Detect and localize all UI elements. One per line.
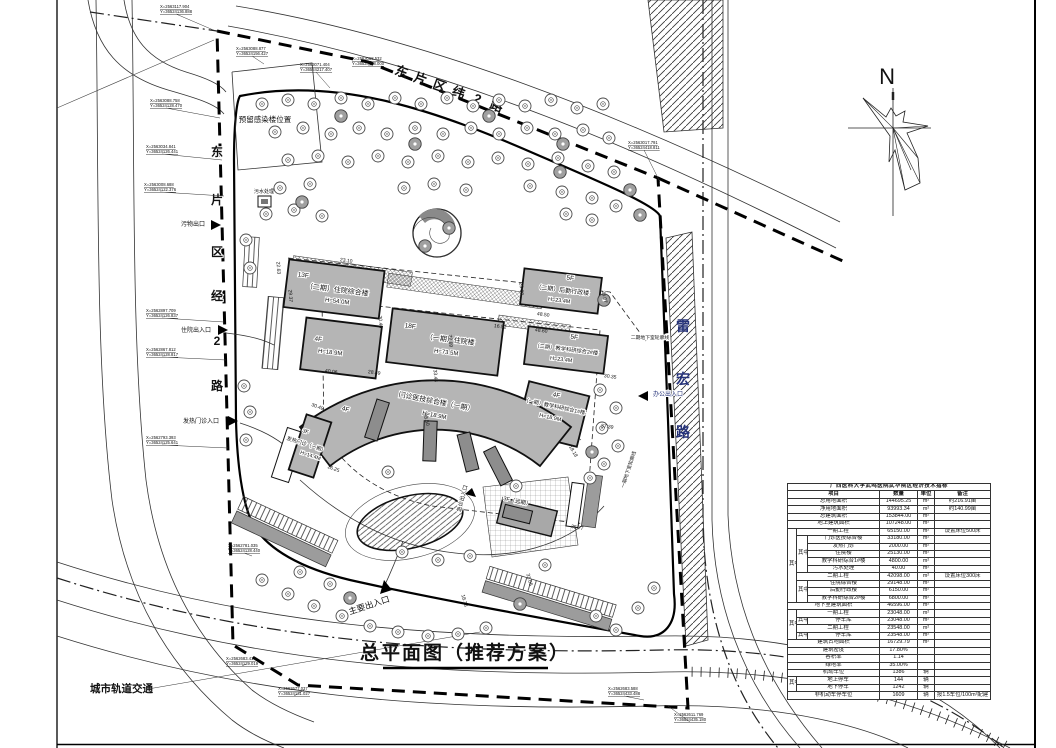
coordinate-label: X=2562781.035Y=36524128.440 — [228, 543, 261, 556]
sewage-note: 污水处理 — [254, 188, 274, 195]
tree-icon — [282, 588, 294, 600]
coordinate-label: X=2562793.393Y=36524125.641 — [146, 435, 228, 448]
cell — [935, 521, 991, 528]
cell: 地上停车 — [797, 677, 880, 684]
cell: 33180.00 — [880, 536, 918, 543]
col-header: 数量 — [880, 491, 918, 498]
cell: m² — [918, 528, 935, 535]
tree-icon — [610, 200, 622, 212]
tree-icon — [422, 630, 434, 642]
svg-text:Y=36524129.019: Y=36524129.019 — [226, 661, 259, 666]
svg-text:Y=36524126.837: Y=36524126.837 — [146, 313, 179, 318]
tree-icon — [603, 132, 615, 144]
tree-icon — [610, 624, 622, 636]
tree-icon — [586, 192, 598, 204]
cell: 1386 — [880, 669, 918, 676]
cell: 总建筑面积 — [788, 513, 880, 520]
cell: 一期工程 — [797, 528, 880, 535]
tree-icon — [598, 458, 610, 470]
office-entrance-arrow-icon — [638, 391, 648, 401]
cell — [935, 513, 991, 520]
dimension-label: 20.46 — [376, 315, 383, 328]
office-entrance-label: 办公出入口 — [653, 390, 683, 398]
table-row: 污水处理40.00m² — [788, 565, 991, 572]
cell-group: 其中 — [788, 677, 797, 692]
cell: 约216.91亩 — [935, 498, 991, 505]
tree-icon — [493, 94, 505, 106]
oval-plaza — [351, 484, 468, 561]
building-slab-east — [566, 474, 603, 527]
cell: 设置床位300床 — [935, 573, 991, 580]
tree-icon — [409, 122, 421, 134]
cell — [918, 662, 935, 669]
tree-icon — [294, 566, 306, 578]
cell: 建筑密度 — [788, 647, 880, 654]
cell-group: 其中 — [797, 536, 808, 573]
table-row: 后勤行政楼6150.00m² — [788, 588, 991, 595]
cell — [935, 588, 991, 595]
tree-solid-icon — [335, 110, 347, 122]
dimension-label: 22.63 — [274, 261, 281, 274]
cell: m² — [918, 558, 935, 565]
cell: m² — [918, 640, 935, 647]
cell: m² — [918, 595, 935, 602]
table-row: 绿地率35.00% — [788, 662, 991, 669]
north-wind-rose-icon: N — [848, 64, 931, 216]
road-char: 路 — [676, 424, 691, 440]
tree-solid-icon — [483, 110, 495, 122]
cell: 门诊医技综合楼 — [808, 536, 880, 543]
cell — [918, 647, 935, 654]
cell — [935, 550, 991, 557]
tree-icon — [586, 214, 598, 226]
cell: 设置床位500床 — [935, 528, 991, 535]
cell: 42098.00 — [880, 573, 918, 580]
svg-text:Y=36524433.488: Y=36524433.488 — [608, 691, 641, 696]
svg-text:Y=36524418.811: Y=36524418.811 — [628, 145, 660, 150]
tree-icon — [556, 186, 568, 198]
tree-icon — [492, 152, 504, 164]
cell: 非机动车停车位 — [788, 692, 880, 699]
cell: 1609 — [880, 692, 918, 699]
tree-icon — [545, 94, 557, 106]
cell: 辆 — [918, 677, 935, 684]
cell: 4800.00 — [880, 558, 918, 565]
tree-solid-icon — [557, 138, 569, 150]
cell: 教学科研综合2#楼 — [808, 595, 880, 602]
building-label: 5F — [570, 334, 578, 342]
cell: 23548.00 — [880, 625, 918, 632]
tree-icon — [428, 178, 440, 190]
tree-icon — [342, 156, 354, 168]
cell: 17.80% — [880, 647, 918, 654]
cell — [935, 632, 991, 639]
dimension-label: 72.69 — [446, 334, 453, 347]
tree-solid-icon — [586, 446, 598, 458]
coordinate-label: X=2563068.532Y=36524198.000 — [352, 56, 385, 66]
cell-group: 其中 — [788, 528, 797, 602]
svg-text:Y=36524128.470: Y=36524128.470 — [150, 103, 183, 108]
road-char: 宏 — [676, 371, 690, 387]
cell: 一期工程 — [797, 610, 880, 617]
dimension-label: 40.06 — [325, 368, 338, 376]
cell: 地下停车 — [797, 684, 880, 691]
cell: 65150.00 — [880, 528, 918, 535]
coordinate-label: X=2562683.414Y=36524129.019 — [226, 656, 259, 666]
cell: 辆 — [918, 692, 935, 699]
cell: 容积率 — [788, 655, 880, 662]
inpatient-entrance-label: 住院出入口 — [181, 326, 211, 334]
cell: 40.00 — [880, 565, 918, 572]
dimension-label: 16.25 — [326, 464, 340, 474]
building-label: 18F — [404, 322, 416, 330]
tree-solid-icon — [624, 184, 636, 196]
tree-icon — [608, 166, 620, 178]
table-row: 净用地面积93993.34m²约140.99亩 — [788, 506, 991, 513]
cell: 地上建筑面积 — [788, 521, 880, 528]
tree-icon — [325, 128, 337, 140]
cell: 地下室建筑面积 — [788, 603, 880, 610]
dimension-label: 30.49 — [310, 402, 324, 412]
tree-icon — [510, 480, 522, 492]
tree-icon — [308, 98, 320, 110]
cell — [935, 610, 991, 617]
tree-icon — [452, 628, 464, 640]
tree-icon — [597, 98, 609, 110]
tree-icon — [240, 234, 252, 246]
cell: 机动车位 — [788, 669, 880, 676]
tree-icon — [297, 122, 309, 134]
tree-icon — [549, 128, 561, 140]
svg-text:Y=36524125.641: Y=36524125.641 — [146, 440, 179, 445]
tree-icon — [584, 472, 596, 484]
tree-icon — [467, 100, 479, 112]
table-row: 其中地上停车144辆 — [788, 677, 991, 684]
cell: 住院楼 — [808, 550, 880, 557]
table-row: 容积率1.14 — [788, 655, 991, 662]
cell: m² — [918, 543, 935, 550]
tree-icon — [392, 626, 404, 638]
cell: m² — [918, 617, 935, 624]
cell: 按1.5车位/100m²配建 — [935, 692, 991, 699]
cell — [935, 625, 991, 632]
cell: 35.00% — [880, 662, 918, 669]
cell: 2000.00 — [880, 543, 918, 550]
svg-text:Y=36524435.180: Y=36524435.180 — [674, 717, 707, 722]
tree-icon — [282, 94, 294, 106]
coordinate-label: X=2563117.904Y=36524136.888 — [160, 4, 218, 32]
cell — [935, 684, 991, 691]
cell: m² — [918, 588, 935, 595]
tree-icon — [244, 262, 256, 274]
cell: 23548.00 — [880, 632, 918, 639]
tree-icon — [594, 384, 606, 396]
table-row: 地下室建筑面积46596.00m² — [788, 603, 991, 610]
cell — [935, 536, 991, 543]
plan-title-text: 总平面图（推荐方案） — [360, 641, 570, 664]
tree-icon — [577, 124, 589, 136]
table-row: 其中一期工程65150.00m²设置床位500床 — [788, 528, 991, 535]
reserved-building-note: 预留感染楼位置 — [239, 114, 292, 124]
tree-icon — [539, 559, 551, 571]
tree-solid-icon — [296, 196, 308, 208]
coordinate-label: X=2563088.758Y=36524128.470 — [150, 98, 220, 118]
tree-icon — [460, 184, 472, 196]
tree-icon — [462, 156, 474, 168]
table-row: 总建筑面积153844.00m² — [788, 513, 991, 520]
cell: m² — [918, 506, 935, 513]
cell: 144 — [880, 677, 918, 684]
road-char: 经 — [211, 288, 223, 303]
table-row: 总用地面积144695.25m²约216.91亩 — [788, 498, 991, 505]
svg-text:Y=36524128.817: Y=36524128.817 — [146, 352, 179, 357]
tree-icon — [464, 550, 476, 562]
road-char: 2 — [214, 334, 221, 348]
cell: m² — [918, 580, 935, 587]
cell: m² — [918, 565, 935, 572]
cell: m² — [918, 550, 935, 557]
tree-icon — [372, 150, 384, 162]
cell: 绿地率 — [788, 662, 880, 669]
cell-group: 其中 — [797, 580, 808, 602]
cell — [935, 662, 991, 669]
tree-solid-icon — [344, 592, 356, 604]
tree-icon — [465, 122, 477, 134]
cell-group: 其中 — [797, 632, 808, 639]
tree-icon — [402, 156, 414, 168]
col-header: 单位 — [918, 491, 935, 498]
table-row: 地上建筑面积107248.00m² — [788, 521, 991, 528]
table-row: 发热门诊2000.00m² — [788, 543, 991, 550]
tree-solid-icon — [634, 209, 646, 221]
road-char: 雷 — [676, 318, 690, 334]
cell — [935, 655, 991, 662]
table-row: 非机动车停车位1609辆按1.5车位/100m²配建 — [788, 692, 991, 699]
coordinate-label: X=2562897.709Y=36524126.837 — [146, 308, 224, 322]
cell — [935, 640, 991, 647]
dimension-label: 29.37 — [286, 289, 293, 302]
tree-icon — [336, 610, 348, 622]
road-char: 路 — [211, 378, 224, 393]
coordinate-label: X=2562683.588Y=36524433.488 — [608, 686, 644, 700]
table-title: 广西医科大学武鸣医院武华院区经济技术指标 — [788, 484, 991, 491]
sewage-treatment-box — [258, 196, 271, 207]
svg-text:Y=36524136.888: Y=36524136.888 — [160, 9, 193, 14]
cell: 辆 — [918, 684, 935, 691]
cell — [935, 603, 991, 610]
coordinate-label: X=2562867.812Y=36524128.817 — [146, 347, 226, 360]
tree-icon — [571, 102, 583, 114]
tree-icon — [610, 402, 622, 414]
tree-icon — [415, 98, 427, 110]
cell — [935, 558, 991, 565]
tree-icon — [582, 160, 594, 172]
table-row: 建筑密度17.80% — [788, 647, 991, 654]
dimension-label: 48.50 — [537, 311, 550, 319]
cell: 辆 — [918, 669, 935, 676]
dimension-label: 23.00 — [517, 282, 524, 295]
table-row: 机动车位1386辆 — [788, 669, 991, 676]
cell: 住院综合楼 — [808, 580, 880, 587]
cell — [935, 543, 991, 550]
cell: 29148.00 — [880, 580, 918, 587]
cell: m² — [918, 536, 935, 543]
tree-icon — [269, 126, 281, 138]
cell — [935, 617, 991, 624]
tree-icon — [590, 610, 602, 622]
road-name-left: 东 片 区 经 2 路 — [211, 144, 224, 393]
cell: 停车库 — [808, 617, 880, 624]
tree-icon — [353, 122, 365, 134]
coordinate-label: X=2563071.404Y=36524217.407 — [300, 62, 333, 88]
cell: 净用地面积 — [788, 506, 880, 513]
tree-icon — [432, 554, 444, 566]
tree-icon — [362, 98, 374, 110]
tree-icon — [441, 92, 453, 104]
coordinate-label: X=2563088.877Y=36524156.427 — [236, 46, 269, 64]
table-row: 二期工程42098.00m²设置床位300床 — [788, 573, 991, 580]
col-header: 备注 — [935, 491, 991, 498]
tree-solid-icon — [514, 598, 526, 610]
tree-icon — [398, 182, 410, 194]
cell: 后勤行政楼 — [808, 588, 880, 595]
tree-icon — [304, 178, 316, 190]
table-row: 其中停车库23048.00m² — [788, 617, 991, 624]
tree-icon — [256, 574, 268, 586]
tree-icon — [335, 92, 347, 104]
tree-icon — [381, 128, 393, 140]
cell: 建筑占地面积 — [788, 640, 880, 647]
cell: m² — [918, 603, 935, 610]
building-label: 4F — [314, 336, 322, 344]
cell: 6800.00 — [880, 595, 918, 602]
tree-icon — [240, 434, 252, 446]
tree-icon — [382, 466, 394, 478]
table-row: 住院楼25130.00m² — [788, 550, 991, 557]
cell: 23048.00 — [880, 610, 918, 617]
plan-title: 总平面图（推荐方案） — [360, 641, 570, 668]
cell: 153844.00 — [880, 513, 918, 520]
cell — [935, 565, 991, 572]
tree-solid-icon — [443, 222, 455, 234]
tree-icon — [552, 152, 564, 164]
waste-exit-arrow-icon — [211, 220, 221, 230]
cell — [935, 595, 991, 602]
tree-icon — [521, 122, 533, 134]
building-label: 5F — [566, 275, 574, 283]
table-row: 二期工程23548.00m² — [788, 625, 991, 632]
svg-text:Y=36524122.376: Y=36524122.376 — [144, 187, 177, 192]
tree-icon — [560, 208, 572, 220]
tree-icon — [324, 578, 336, 590]
cell: 23048.00 — [880, 617, 918, 624]
tree-icon — [260, 208, 272, 220]
tree-solid-icon — [419, 240, 431, 252]
tree-icon — [312, 150, 324, 162]
tree-icon — [316, 210, 328, 222]
svg-text:Y=36524126.441: Y=36524126.441 — [146, 149, 179, 154]
cell — [935, 677, 991, 684]
svg-text:Y=36524198.000: Y=36524198.000 — [352, 61, 385, 66]
tree-icon — [432, 150, 444, 162]
road-char: 片 — [211, 192, 223, 207]
cell: m² — [918, 573, 935, 580]
cell-group: 其中 — [797, 617, 808, 624]
tree-solid-icon — [554, 166, 566, 178]
tree-icon — [480, 622, 492, 634]
tree-icon — [396, 546, 408, 558]
dimension-label: 18.78 — [459, 594, 468, 608]
tree-icon — [256, 98, 268, 110]
technical-indicators-table: 广西医科大学武鸣医院武华院区经济技术指标 项目 数量 单位 备注 总用地面积14… — [787, 483, 990, 700]
tree-icon — [522, 158, 534, 170]
coordinate-label: X=2562677.037Y=36524131.027 — [278, 686, 311, 696]
cell: 二期工程 — [797, 573, 880, 580]
dimension-label: 30.35 — [604, 373, 617, 381]
cell: m² — [918, 498, 935, 505]
cell — [935, 580, 991, 587]
cell — [935, 669, 991, 676]
cell: 停车库 — [808, 632, 880, 639]
waste-exit-label: 污物出口 — [181, 220, 205, 228]
underground-note-phase2: 二期地下室轮廓线 — [631, 334, 670, 341]
cell: m² — [918, 625, 935, 632]
building-label: 13F — [297, 271, 309, 279]
tree-icon — [612, 440, 624, 452]
cell: m² — [918, 513, 935, 520]
cell: 6150.00 — [880, 588, 918, 595]
tree-icon — [274, 182, 286, 194]
tree-icon — [308, 600, 320, 612]
tree-icon — [524, 180, 536, 192]
tree-icon — [364, 620, 376, 632]
table-row: 其中停车库23548.00m² — [788, 632, 991, 639]
tree-icon — [519, 100, 531, 112]
cell: 总用地面积 — [788, 498, 880, 505]
cell: 144695.25 — [880, 498, 918, 505]
cell: m² — [918, 632, 935, 639]
tree-icon — [389, 92, 401, 104]
svg-text:Y=36524156.427: Y=36524156.427 — [236, 51, 269, 56]
cell: 约140.99亩 — [935, 506, 991, 513]
table-row: 其中一期工程23048.00m² — [788, 610, 991, 617]
cell: m² — [918, 521, 935, 528]
cell: 93993.34 — [880, 506, 918, 513]
cell — [918, 655, 935, 662]
road-char: 区 — [211, 245, 223, 259]
site-plan-sheet: 13F （二期）住院综合楼 H=54.0M 4F H=18.9M 18F （一期… — [0, 0, 1056, 748]
cell: m² — [918, 610, 935, 617]
cell: 1.14 — [880, 655, 918, 662]
tree-icon — [244, 406, 256, 418]
svg-text:Y=36524128.440: Y=36524128.440 — [228, 548, 261, 553]
table-row: 教学科研综合1#楼4800.00m² — [788, 558, 991, 565]
cell: 污水处理 — [808, 565, 880, 572]
tree-icon — [282, 154, 294, 166]
cell: 教学科研综合1#楼 — [808, 558, 880, 565]
table-row: 教学科研综合2#楼6800.00m² — [788, 595, 991, 602]
table-row: 建筑占地面积16729.79m² — [788, 640, 991, 647]
rail-label-text: 城市轨道交通 — [90, 682, 153, 695]
cell — [935, 647, 991, 654]
tree-solid-icon — [409, 138, 421, 150]
svg-text:Y=36524131.027: Y=36524131.027 — [278, 691, 311, 696]
cell: 16729.79 — [880, 640, 918, 647]
svg-text:Y=36524217.407: Y=36524217.407 — [300, 67, 333, 72]
tree-icon — [493, 128, 505, 140]
col-header: 项目 — [788, 491, 880, 498]
north-label: N — [879, 64, 895, 89]
